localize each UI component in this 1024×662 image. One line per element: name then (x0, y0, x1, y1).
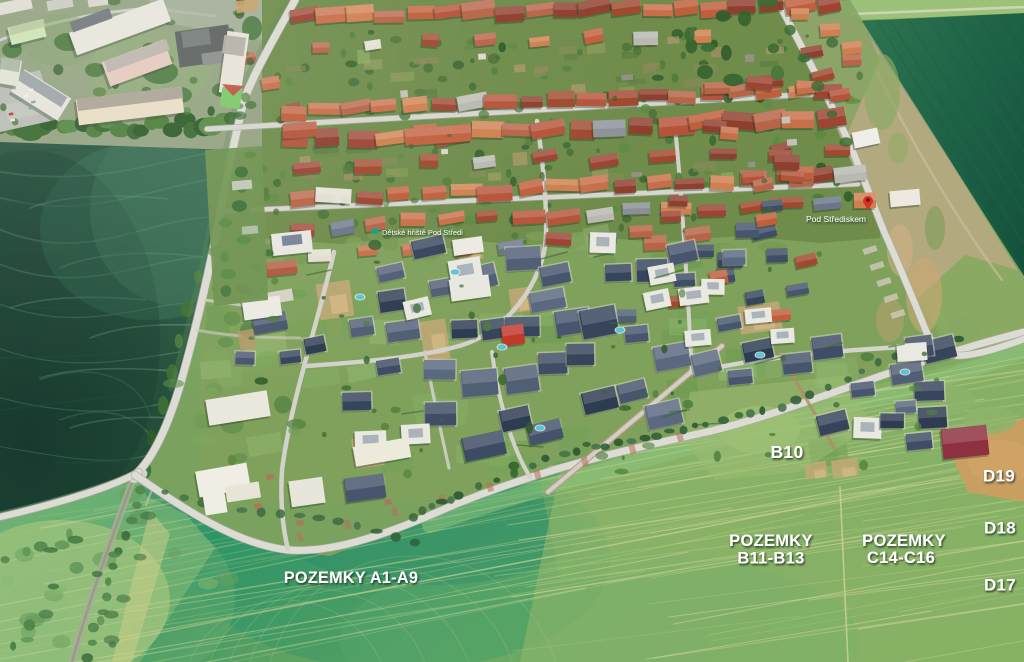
svg-text:D18: D18 (984, 519, 1016, 538)
svg-text:POZEMKY: POZEMKY (729, 532, 813, 550)
svg-text:C14-C16: C14-C16 (867, 549, 935, 567)
svg-text:D17: D17 (984, 576, 1016, 595)
svg-text:POZEMKY A1-A9: POZEMKY A1-A9 (284, 569, 418, 587)
svg-text:D19: D19 (983, 467, 1015, 486)
svg-text:B11-B13: B11-B13 (737, 550, 804, 568)
svg-text:B10: B10 (770, 442, 803, 462)
svg-text:POZEMKY: POZEMKY (862, 532, 946, 550)
